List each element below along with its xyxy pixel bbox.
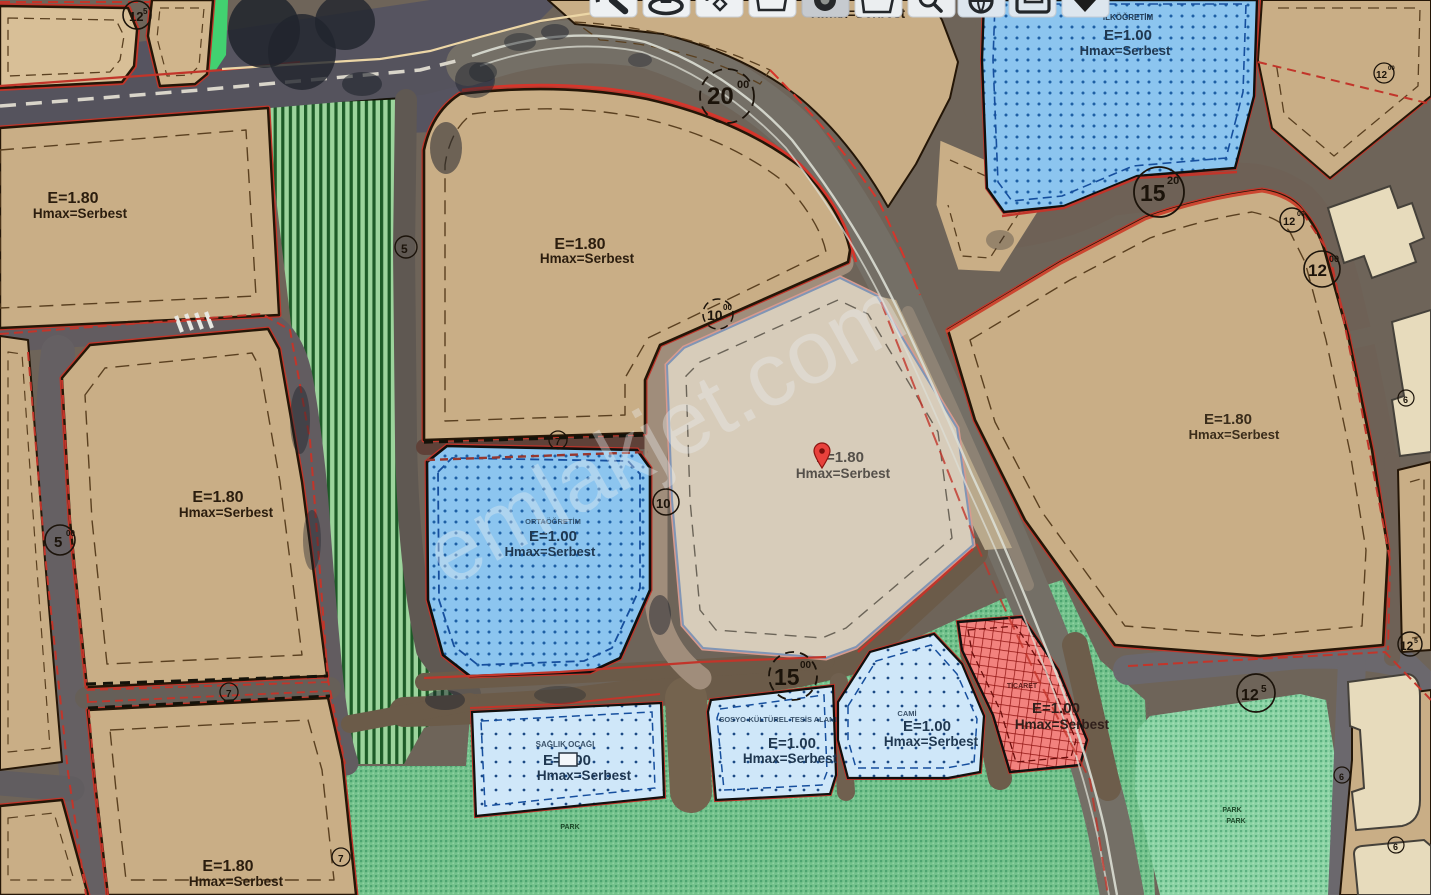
svg-text:12: 12 (1283, 216, 1295, 228)
svg-text:Hmax=Serbest: Hmax=Serbest (537, 768, 632, 783)
svg-text:Hmax=Serbest: Hmax=Serbest (1189, 427, 1280, 442)
svg-text:Hmax=Serbest: Hmax=Serbest (33, 206, 128, 221)
svg-text:6: 6 (1393, 842, 1398, 852)
svg-text:E=1.80: E=1.80 (202, 858, 253, 875)
svg-text:Hmax=Serbest: Hmax=Serbest (884, 734, 979, 749)
svg-text:Hmax=Serbest: Hmax=Serbest (1015, 717, 1110, 732)
svg-text:5: 5 (401, 242, 408, 256)
svg-text:E=1.80: E=1.80 (1204, 411, 1252, 428)
svg-text:İLKÖĞRETİM: İLKÖĞRETİM (1103, 13, 1154, 22)
svg-text:5: 5 (143, 7, 148, 16)
svg-text:Hmax=Serbest: Hmax=Serbest (189, 874, 284, 889)
svg-text:Hmax=Serbest: Hmax=Serbest (540, 251, 635, 266)
svg-text:12: 12 (1376, 70, 1388, 81)
svg-text:00: 00 (800, 660, 812, 671)
svg-text:5: 5 (1414, 638, 1418, 645)
svg-text:15: 15 (1140, 180, 1166, 206)
svg-text:PARK: PARK (1222, 807, 1241, 814)
svg-text:12: 12 (1308, 261, 1327, 280)
svg-text:CAMİ: CAMİ (897, 709, 916, 718)
svg-text:E=1.00: E=1.00 (1032, 700, 1080, 717)
svg-text:PARK: PARK (1226, 818, 1245, 825)
svg-text:15: 15 (774, 664, 800, 690)
svg-text:6: 6 (1339, 772, 1344, 782)
svg-text:Hmax=Serbest: Hmax=Serbest (1080, 43, 1171, 58)
svg-text:SOSYO-KÜLTÜREL TESİS ALANI: SOSYO-KÜLTÜREL TESİS ALANI (719, 715, 836, 724)
svg-text:E=1.80: E=1.80 (192, 489, 243, 506)
svg-text:12: 12 (1241, 687, 1259, 704)
svg-text:20: 20 (1167, 175, 1179, 187)
svg-text:SAĞLIK OCAĞI: SAĞLIK OCAĞI (536, 740, 595, 749)
svg-text:00: 00 (1297, 211, 1305, 218)
svg-text:E=1.80: E=1.80 (47, 190, 98, 207)
svg-text:5: 5 (54, 534, 62, 551)
svg-text:E=1.00: E=1.00 (768, 735, 816, 752)
svg-text:TİCARET: TİCARET (1007, 682, 1038, 690)
svg-text:20: 20 (707, 83, 734, 110)
svg-text:12: 12 (1400, 639, 1414, 653)
svg-text:00: 00 (1388, 66, 1395, 72)
svg-text:00: 00 (1329, 254, 1339, 264)
svg-text:7: 7 (338, 854, 344, 865)
svg-text:00: 00 (723, 303, 732, 312)
svg-text:E=1.00: E=1.00 (1104, 27, 1152, 44)
svg-text:00: 00 (737, 79, 749, 91)
svg-text:10: 10 (656, 496, 670, 511)
svg-text:5: 5 (1261, 684, 1267, 695)
svg-text:6: 6 (1403, 395, 1408, 405)
svg-text:Hmax=Serbest: Hmax=Serbest (743, 751, 838, 766)
svg-text:7: 7 (226, 689, 232, 700)
svg-text:E=1.00: E=1.00 (903, 718, 951, 735)
svg-text:12: 12 (129, 9, 143, 24)
svg-text:PARK: PARK (560, 824, 579, 831)
svg-text:10: 10 (707, 307, 723, 323)
svg-text:Hmax=Serbest: Hmax=Serbest (179, 505, 274, 520)
svg-text:00: 00 (66, 529, 75, 538)
svg-text:Hmax=Serbest: Hmax=Serbest (796, 466, 891, 481)
